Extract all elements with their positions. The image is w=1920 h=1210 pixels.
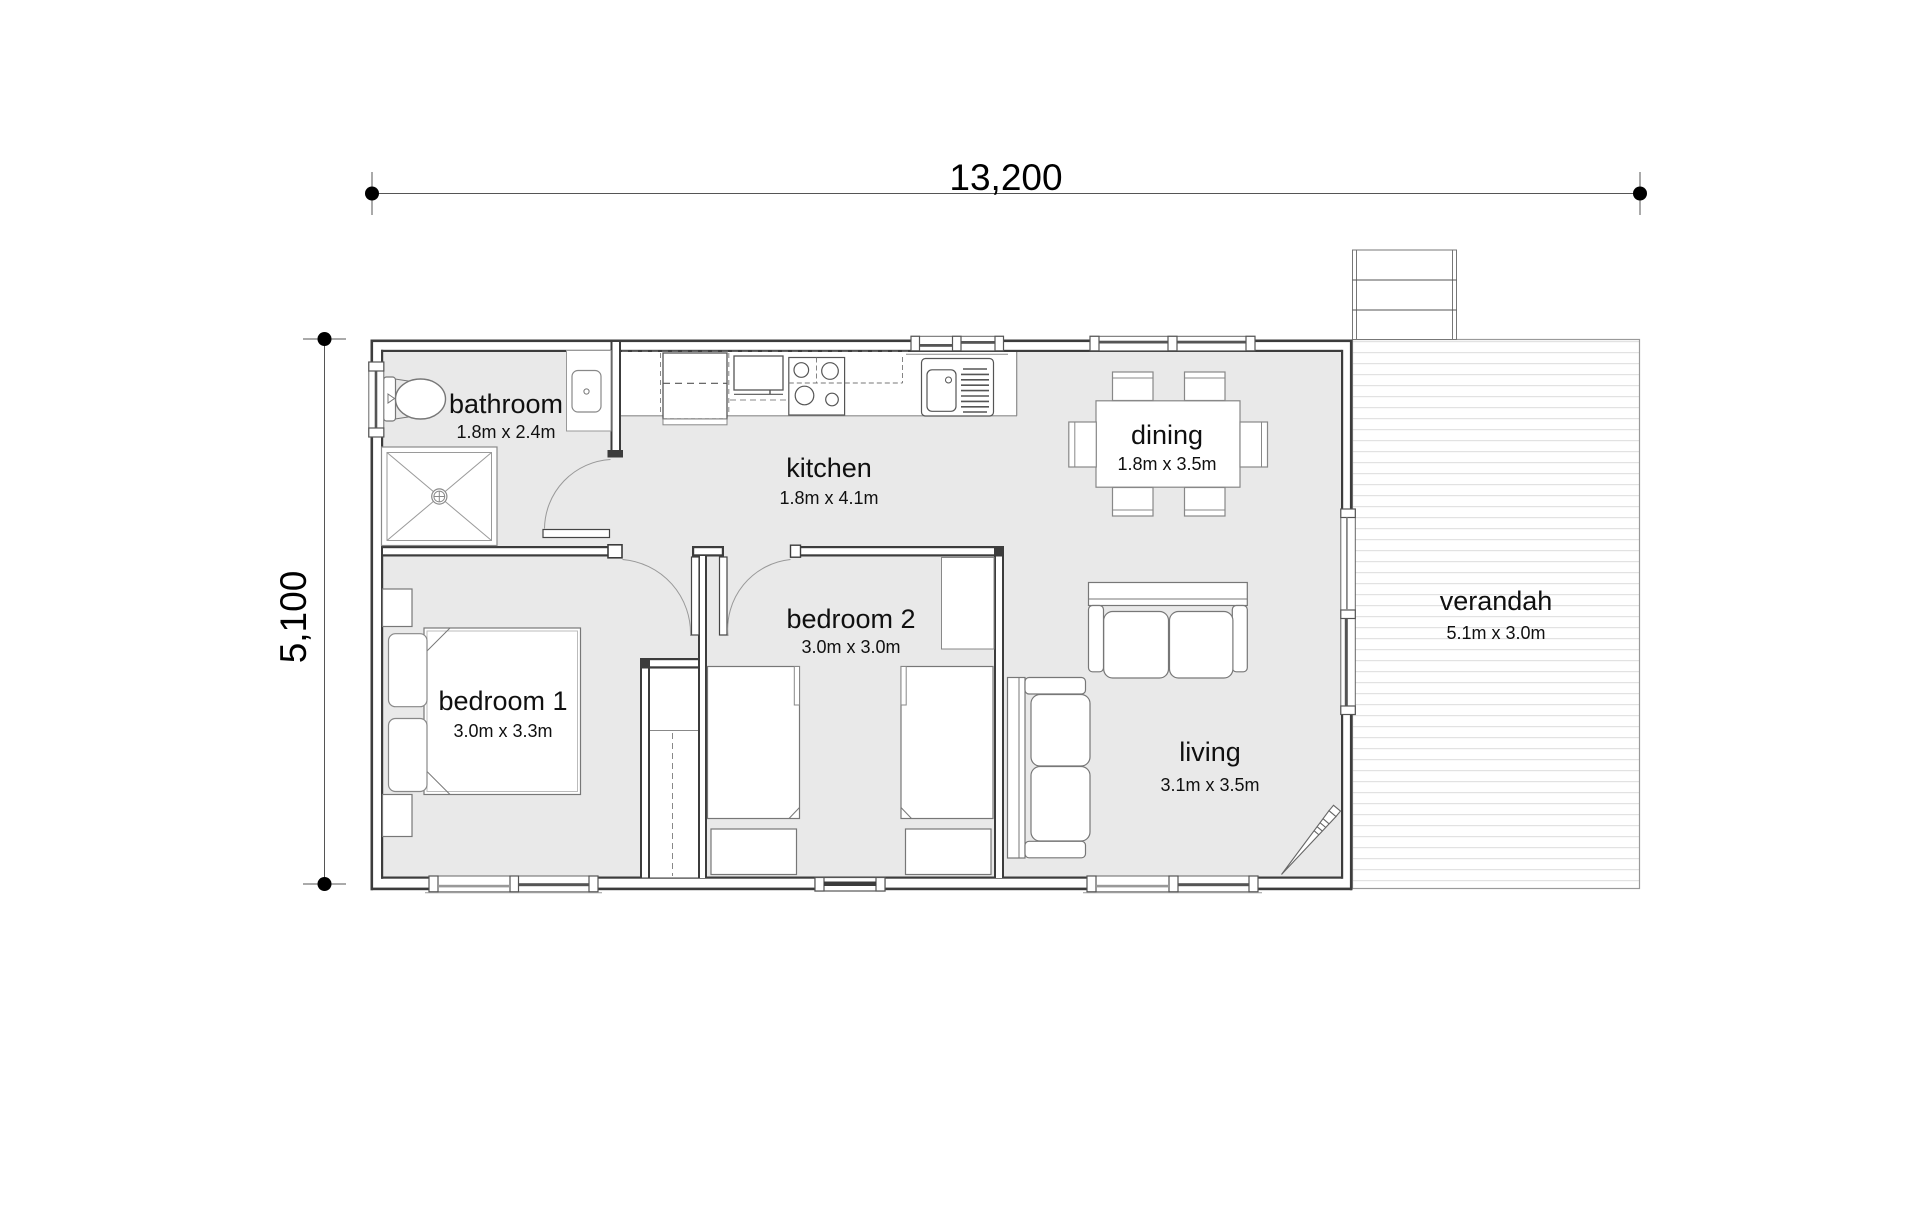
svg-text:1.8m x 3.5m: 1.8m x 3.5m — [1117, 454, 1216, 474]
svg-text:1.8m x 4.1m: 1.8m x 4.1m — [779, 488, 878, 508]
svg-text:5.1m x 3.0m: 5.1m x 3.0m — [1446, 623, 1545, 643]
svg-text:kitchen: kitchen — [786, 453, 872, 483]
svg-text:dining: dining — [1131, 420, 1203, 450]
svg-text:bedroom 2: bedroom 2 — [786, 604, 915, 634]
svg-text:13,200: 13,200 — [949, 157, 1062, 198]
svg-text:3.0m x 3.0m: 3.0m x 3.0m — [801, 637, 900, 657]
svg-text:bathroom: bathroom — [449, 389, 563, 419]
svg-text:1.8m x 2.4m: 1.8m x 2.4m — [456, 422, 555, 442]
svg-text:living: living — [1179, 737, 1241, 767]
svg-text:3.0m x 3.3m: 3.0m x 3.3m — [453, 721, 552, 741]
svg-text:verandah: verandah — [1440, 586, 1553, 616]
svg-text:5,100: 5,100 — [273, 571, 314, 664]
svg-text:bedroom 1: bedroom 1 — [438, 686, 567, 716]
svg-text:3.1m x 3.5m: 3.1m x 3.5m — [1160, 775, 1259, 795]
